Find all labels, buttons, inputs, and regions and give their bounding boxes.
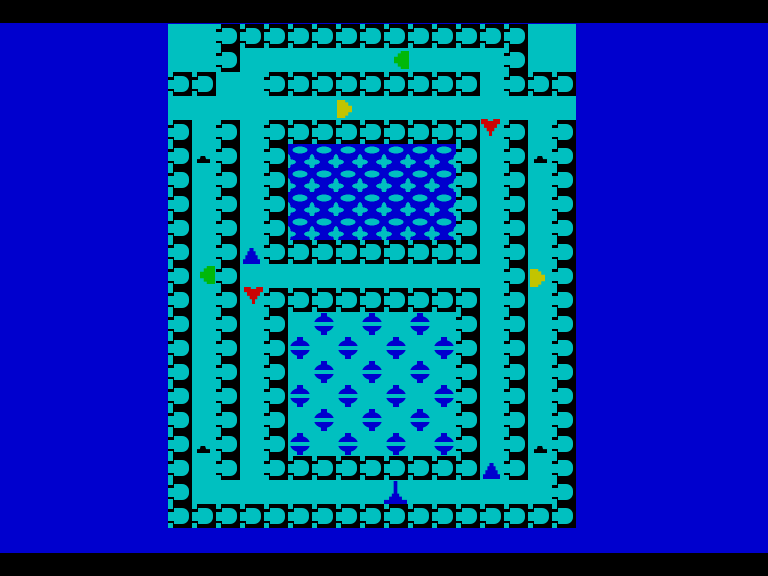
wall-block (432, 120, 456, 144)
wall-block (240, 504, 264, 528)
maze-playfield[interactable] (168, 24, 576, 528)
zx-game-screen (0, 0, 768, 576)
wall-block (456, 336, 480, 360)
wall-block (168, 360, 192, 384)
corridor-mark-2 (534, 156, 547, 163)
player-sprite[interactable] (384, 481, 407, 504)
orb (410, 412, 430, 428)
wall-block (456, 240, 480, 264)
wall-block (504, 72, 528, 96)
wall-block (264, 216, 288, 240)
wall-block (456, 24, 480, 48)
wall-block (312, 120, 336, 144)
wall-block (168, 288, 192, 312)
wall-block (168, 504, 192, 528)
wall-block (480, 24, 504, 48)
wall-block (216, 288, 240, 312)
wall-block (288, 240, 312, 264)
wall-block (552, 336, 576, 360)
wall-block (384, 504, 408, 528)
orb (434, 388, 454, 404)
orb (338, 340, 358, 356)
orb (386, 388, 406, 404)
wall-block (168, 456, 192, 480)
wall-block (192, 504, 216, 528)
wall-block (456, 504, 480, 528)
wall-block (168, 120, 192, 144)
wall-block (432, 240, 456, 264)
wall-block (360, 24, 384, 48)
orb (386, 340, 406, 356)
wall-block (168, 480, 192, 504)
water-patch (288, 144, 456, 240)
wall-block (216, 168, 240, 192)
wall-block (504, 384, 528, 408)
wall-block (216, 216, 240, 240)
corridor-mark-4 (534, 446, 547, 453)
wall-block (168, 312, 192, 336)
wall-block (264, 240, 288, 264)
wall-block (312, 72, 336, 96)
wall-block (552, 144, 576, 168)
top-letterbox (0, 0, 768, 23)
wall-block (360, 288, 384, 312)
orb (314, 316, 334, 332)
wall-block (408, 120, 432, 144)
wall-block (552, 72, 576, 96)
wall-block (264, 312, 288, 336)
wall-block (456, 288, 480, 312)
wall-block (336, 240, 360, 264)
wall-block (216, 312, 240, 336)
wall-block (504, 288, 528, 312)
orb (290, 388, 310, 404)
wall-block (264, 288, 288, 312)
wall-block (504, 240, 528, 264)
wall-block (216, 48, 240, 72)
wall-block (456, 72, 480, 96)
orb (338, 388, 358, 404)
wall-block (552, 240, 576, 264)
wall-block (504, 264, 528, 288)
orb (386, 436, 406, 452)
wall-block (264, 168, 288, 192)
wall-block (504, 312, 528, 336)
wall-block (264, 144, 288, 168)
wall-block (456, 432, 480, 456)
wall-block (336, 288, 360, 312)
wall-block (552, 264, 576, 288)
wall-block (264, 456, 288, 480)
wall-block (456, 120, 480, 144)
orb (434, 340, 454, 356)
wall-block (432, 72, 456, 96)
wall-block (216, 240, 240, 264)
orb (434, 436, 454, 452)
wall-block (456, 216, 480, 240)
wall-block (264, 408, 288, 432)
wall-block (216, 24, 240, 48)
wall-block (456, 456, 480, 480)
wall-block (216, 336, 240, 360)
corridor-mark-3 (197, 446, 210, 453)
wall-block (264, 384, 288, 408)
wall-block (384, 72, 408, 96)
wall-block (480, 504, 504, 528)
wall-block (552, 192, 576, 216)
wall-block (312, 24, 336, 48)
wall-block (312, 240, 336, 264)
wall-block (360, 504, 384, 528)
wall-block (168, 336, 192, 360)
wall-block (504, 192, 528, 216)
wall-block (336, 504, 360, 528)
wall-block (456, 144, 480, 168)
wall-block (528, 504, 552, 528)
wall-block (168, 264, 192, 288)
wall-block (168, 192, 192, 216)
wall-block (384, 240, 408, 264)
wall-block (168, 240, 192, 264)
wall-block (264, 192, 288, 216)
item-red-1 (481, 119, 500, 136)
wall-block (288, 288, 312, 312)
orb (362, 364, 382, 380)
wall-block (432, 504, 456, 528)
orb (338, 436, 358, 452)
wall-block (456, 360, 480, 384)
wall-block (456, 312, 480, 336)
wall-block (264, 432, 288, 456)
wall-block (504, 144, 528, 168)
wall-block (360, 72, 384, 96)
item-yellow-2 (530, 269, 545, 287)
wall-block (408, 240, 432, 264)
wall-block (216, 408, 240, 432)
wall-block (504, 120, 528, 144)
orb (314, 364, 334, 380)
wall-block (360, 240, 384, 264)
item-red-2 (244, 287, 263, 304)
orb (290, 340, 310, 356)
wall-block (240, 24, 264, 48)
wall-block (552, 168, 576, 192)
wall-block (552, 480, 576, 504)
wall-block (504, 336, 528, 360)
wall-block (504, 48, 528, 72)
item-blue-2 (483, 463, 500, 479)
wall-block (504, 360, 528, 384)
wall-block (432, 288, 456, 312)
wall-block (216, 384, 240, 408)
wall-block (456, 384, 480, 408)
orb (410, 364, 430, 380)
wall-block (336, 456, 360, 480)
item-blue-1 (243, 248, 260, 264)
wall-block (552, 216, 576, 240)
wall-block (504, 216, 528, 240)
wall-block (384, 120, 408, 144)
wall-block (432, 456, 456, 480)
wall-block (216, 120, 240, 144)
wall-block (408, 504, 432, 528)
wall-block (432, 24, 456, 48)
wall-block (168, 72, 192, 96)
orb (362, 412, 382, 428)
item-yellow-1 (337, 100, 352, 118)
wall-block (504, 432, 528, 456)
wall-block (168, 144, 192, 168)
wall-block (168, 432, 192, 456)
wall-block (528, 72, 552, 96)
wall-block (168, 384, 192, 408)
orb (290, 436, 310, 452)
wall-block (360, 456, 384, 480)
wall-block (264, 24, 288, 48)
wall-block (216, 192, 240, 216)
wall-block (336, 120, 360, 144)
wall-block (168, 216, 192, 240)
wall-block (216, 432, 240, 456)
wall-block (408, 72, 432, 96)
wall-block (216, 144, 240, 168)
wall-block (336, 72, 360, 96)
wall-block (216, 360, 240, 384)
item-green-1 (394, 51, 409, 69)
item-green-2 (200, 266, 215, 284)
wall-block (360, 120, 384, 144)
wall-block (456, 408, 480, 432)
wall-block (288, 456, 312, 480)
wall-block (408, 456, 432, 480)
wall-block (552, 432, 576, 456)
wall-block (192, 72, 216, 96)
orb (410, 316, 430, 332)
wall-block (552, 288, 576, 312)
wall-block (216, 456, 240, 480)
wall-block (264, 336, 288, 360)
wall-block (552, 360, 576, 384)
wall-block (384, 456, 408, 480)
wall-block (384, 288, 408, 312)
wall-block (552, 408, 576, 432)
wall-block (312, 504, 336, 528)
wall-block (552, 120, 576, 144)
wall-block (504, 168, 528, 192)
wall-block (288, 504, 312, 528)
wall-block (552, 384, 576, 408)
wall-block (288, 120, 312, 144)
wall-block (504, 504, 528, 528)
wall-block (336, 24, 360, 48)
wall-block (552, 504, 576, 528)
corridor-mark-1 (197, 156, 210, 163)
wall-block (216, 264, 240, 288)
wall-block (168, 168, 192, 192)
wall-block (288, 72, 312, 96)
bottom-letterbox (0, 553, 768, 576)
wall-block (384, 24, 408, 48)
orb (314, 412, 334, 428)
wall-block (504, 408, 528, 432)
wall-block (312, 456, 336, 480)
wall-block (264, 120, 288, 144)
wall-block (312, 288, 336, 312)
wall-block (552, 456, 576, 480)
wall-block (264, 72, 288, 96)
orb (362, 316, 382, 332)
wall-block (408, 288, 432, 312)
wall-block (216, 504, 240, 528)
wall-block (504, 24, 528, 48)
wall-block (504, 456, 528, 480)
wall-block (264, 360, 288, 384)
wall-block (264, 504, 288, 528)
wall-block (168, 408, 192, 432)
wall-block (456, 168, 480, 192)
wall-block (408, 24, 432, 48)
wall-block (552, 312, 576, 336)
wall-block (456, 192, 480, 216)
wall-block (288, 24, 312, 48)
